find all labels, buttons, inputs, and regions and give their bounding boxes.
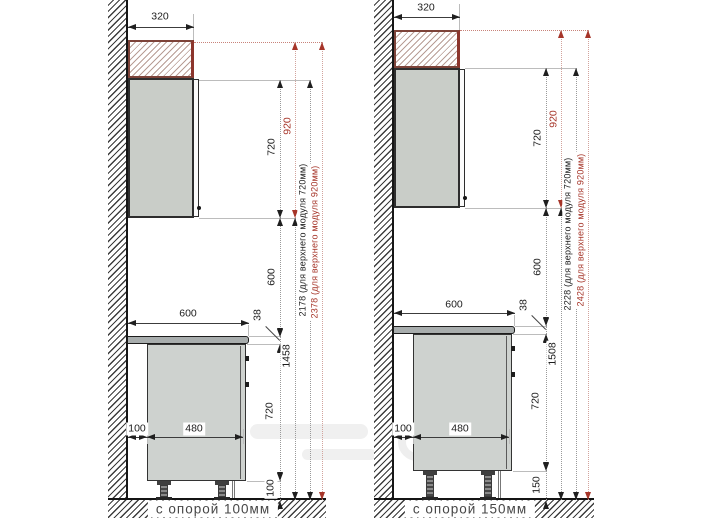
dim-line-leg-100 (280, 481, 281, 500)
countertop (127, 336, 249, 344)
back-panel-line (498, 471, 501, 498)
dim-label-upper-720: 720 (265, 136, 278, 158)
dim-line-upper-720 (280, 80, 281, 218)
projection-line (465, 68, 576, 69)
dim-line-total-2428 (588, 30, 589, 500)
dim-label-100: 100 (126, 422, 148, 435)
countertop (393, 326, 515, 334)
dim-line-920 (295, 42, 296, 218)
dim-label-1508: 1508 (546, 340, 559, 367)
projection-line (513, 334, 546, 335)
dim-label-1458: 1458 (280, 342, 293, 369)
dim-line-counter-38 (546, 326, 547, 334)
dim-label-38: 38 (517, 297, 530, 313)
dim-line-1458 (295, 218, 296, 500)
projection-line (194, 42, 322, 43)
dim-line-upper-720 (546, 68, 547, 208)
upper-cabinet (394, 68, 460, 208)
upper-extension-zone (394, 30, 460, 68)
projection-line (199, 80, 310, 81)
door-knob (197, 206, 201, 210)
base-cabinet (147, 344, 246, 481)
door-knob (463, 196, 467, 200)
drawer-handle (245, 356, 249, 361)
dim-label-base-720: 720 (263, 400, 276, 422)
base-door-line (506, 336, 507, 469)
dim-label-upper-720: 720 (531, 127, 544, 149)
leg (218, 485, 226, 497)
dim-label-base-720: 720 (529, 390, 542, 412)
dim-label-gap-600: 600 (531, 256, 544, 278)
upper-cabinet-door (193, 79, 199, 217)
dim-label-480: 480 (183, 422, 205, 435)
base-door-line (240, 346, 241, 479)
leg (426, 475, 434, 497)
panel-caption: с опорой 150мм (405, 501, 535, 518)
dim-label-480: 480 (449, 422, 471, 435)
leg (160, 485, 168, 497)
dim-line-320 (128, 27, 194, 28)
dim-label-38: 38 (251, 307, 264, 323)
dim-label-total-2178: 2178 (для верхнего модуля 720мм) (297, 161, 308, 318)
dim-label-600: 600 (177, 307, 199, 320)
dim-line-600 (128, 323, 249, 324)
projection-line (460, 30, 588, 31)
dim-line-480 (147, 437, 243, 438)
dim-line-100 (394, 437, 413, 438)
projection-tick (248, 325, 249, 336)
dim-line-600 (394, 313, 515, 314)
dim-line-gap-600 (280, 218, 281, 337)
dim-label-leg-100: 100 (264, 477, 277, 499)
dim-line-100 (128, 437, 147, 438)
dim-label-100: 100 (392, 422, 414, 435)
projection-tick (514, 315, 515, 326)
dim-label-total-2228: 2228 (для верхнего модуля 720мм) (562, 155, 573, 312)
upper-extension-zone (128, 40, 194, 78)
leg (484, 475, 492, 497)
upper-cabinet-door (459, 69, 465, 207)
panel-caption: с опорой 100мм (148, 501, 278, 518)
cabinet-mounting-diagram: 320 600 100 480 720 600 38 720 100 920 1… (0, 0, 702, 523)
back-panel-line (232, 481, 235, 498)
dim-line-leg-150 (546, 471, 547, 500)
door-handle (245, 382, 249, 387)
door-handle (511, 372, 515, 377)
dim-line-480 (413, 437, 509, 438)
dim-label-920: 920 (547, 108, 560, 130)
dim-label-600: 600 (443, 298, 465, 311)
dim-label-320: 320 (149, 10, 171, 23)
watermark (302, 449, 376, 460)
dim-label-total-2378: 2378 (для верхнего модуля 920мм) (309, 163, 320, 320)
dim-line-total-2378 (322, 42, 323, 500)
upper-cabinet (128, 78, 194, 218)
drawer-handle (511, 346, 515, 351)
base-cabinet (413, 334, 512, 471)
wall-section (374, 0, 394, 500)
projection-tick (509, 429, 510, 444)
dim-label-gap-600: 600 (265, 266, 278, 288)
dim-label-920: 920 (281, 115, 294, 137)
dim-label-leg-150: 150 (530, 474, 543, 496)
projection-line (247, 344, 280, 345)
projection-tick (243, 429, 244, 444)
wall-section (108, 0, 128, 500)
dim-line-gap-600 (546, 208, 547, 326)
dim-line-320 (394, 17, 460, 18)
dim-label-total-2428: 2428 (для верхнего модуля 920мм) (575, 151, 586, 308)
projection-line (513, 471, 546, 472)
watermark (250, 424, 368, 439)
dim-label-320: 320 (415, 1, 437, 14)
